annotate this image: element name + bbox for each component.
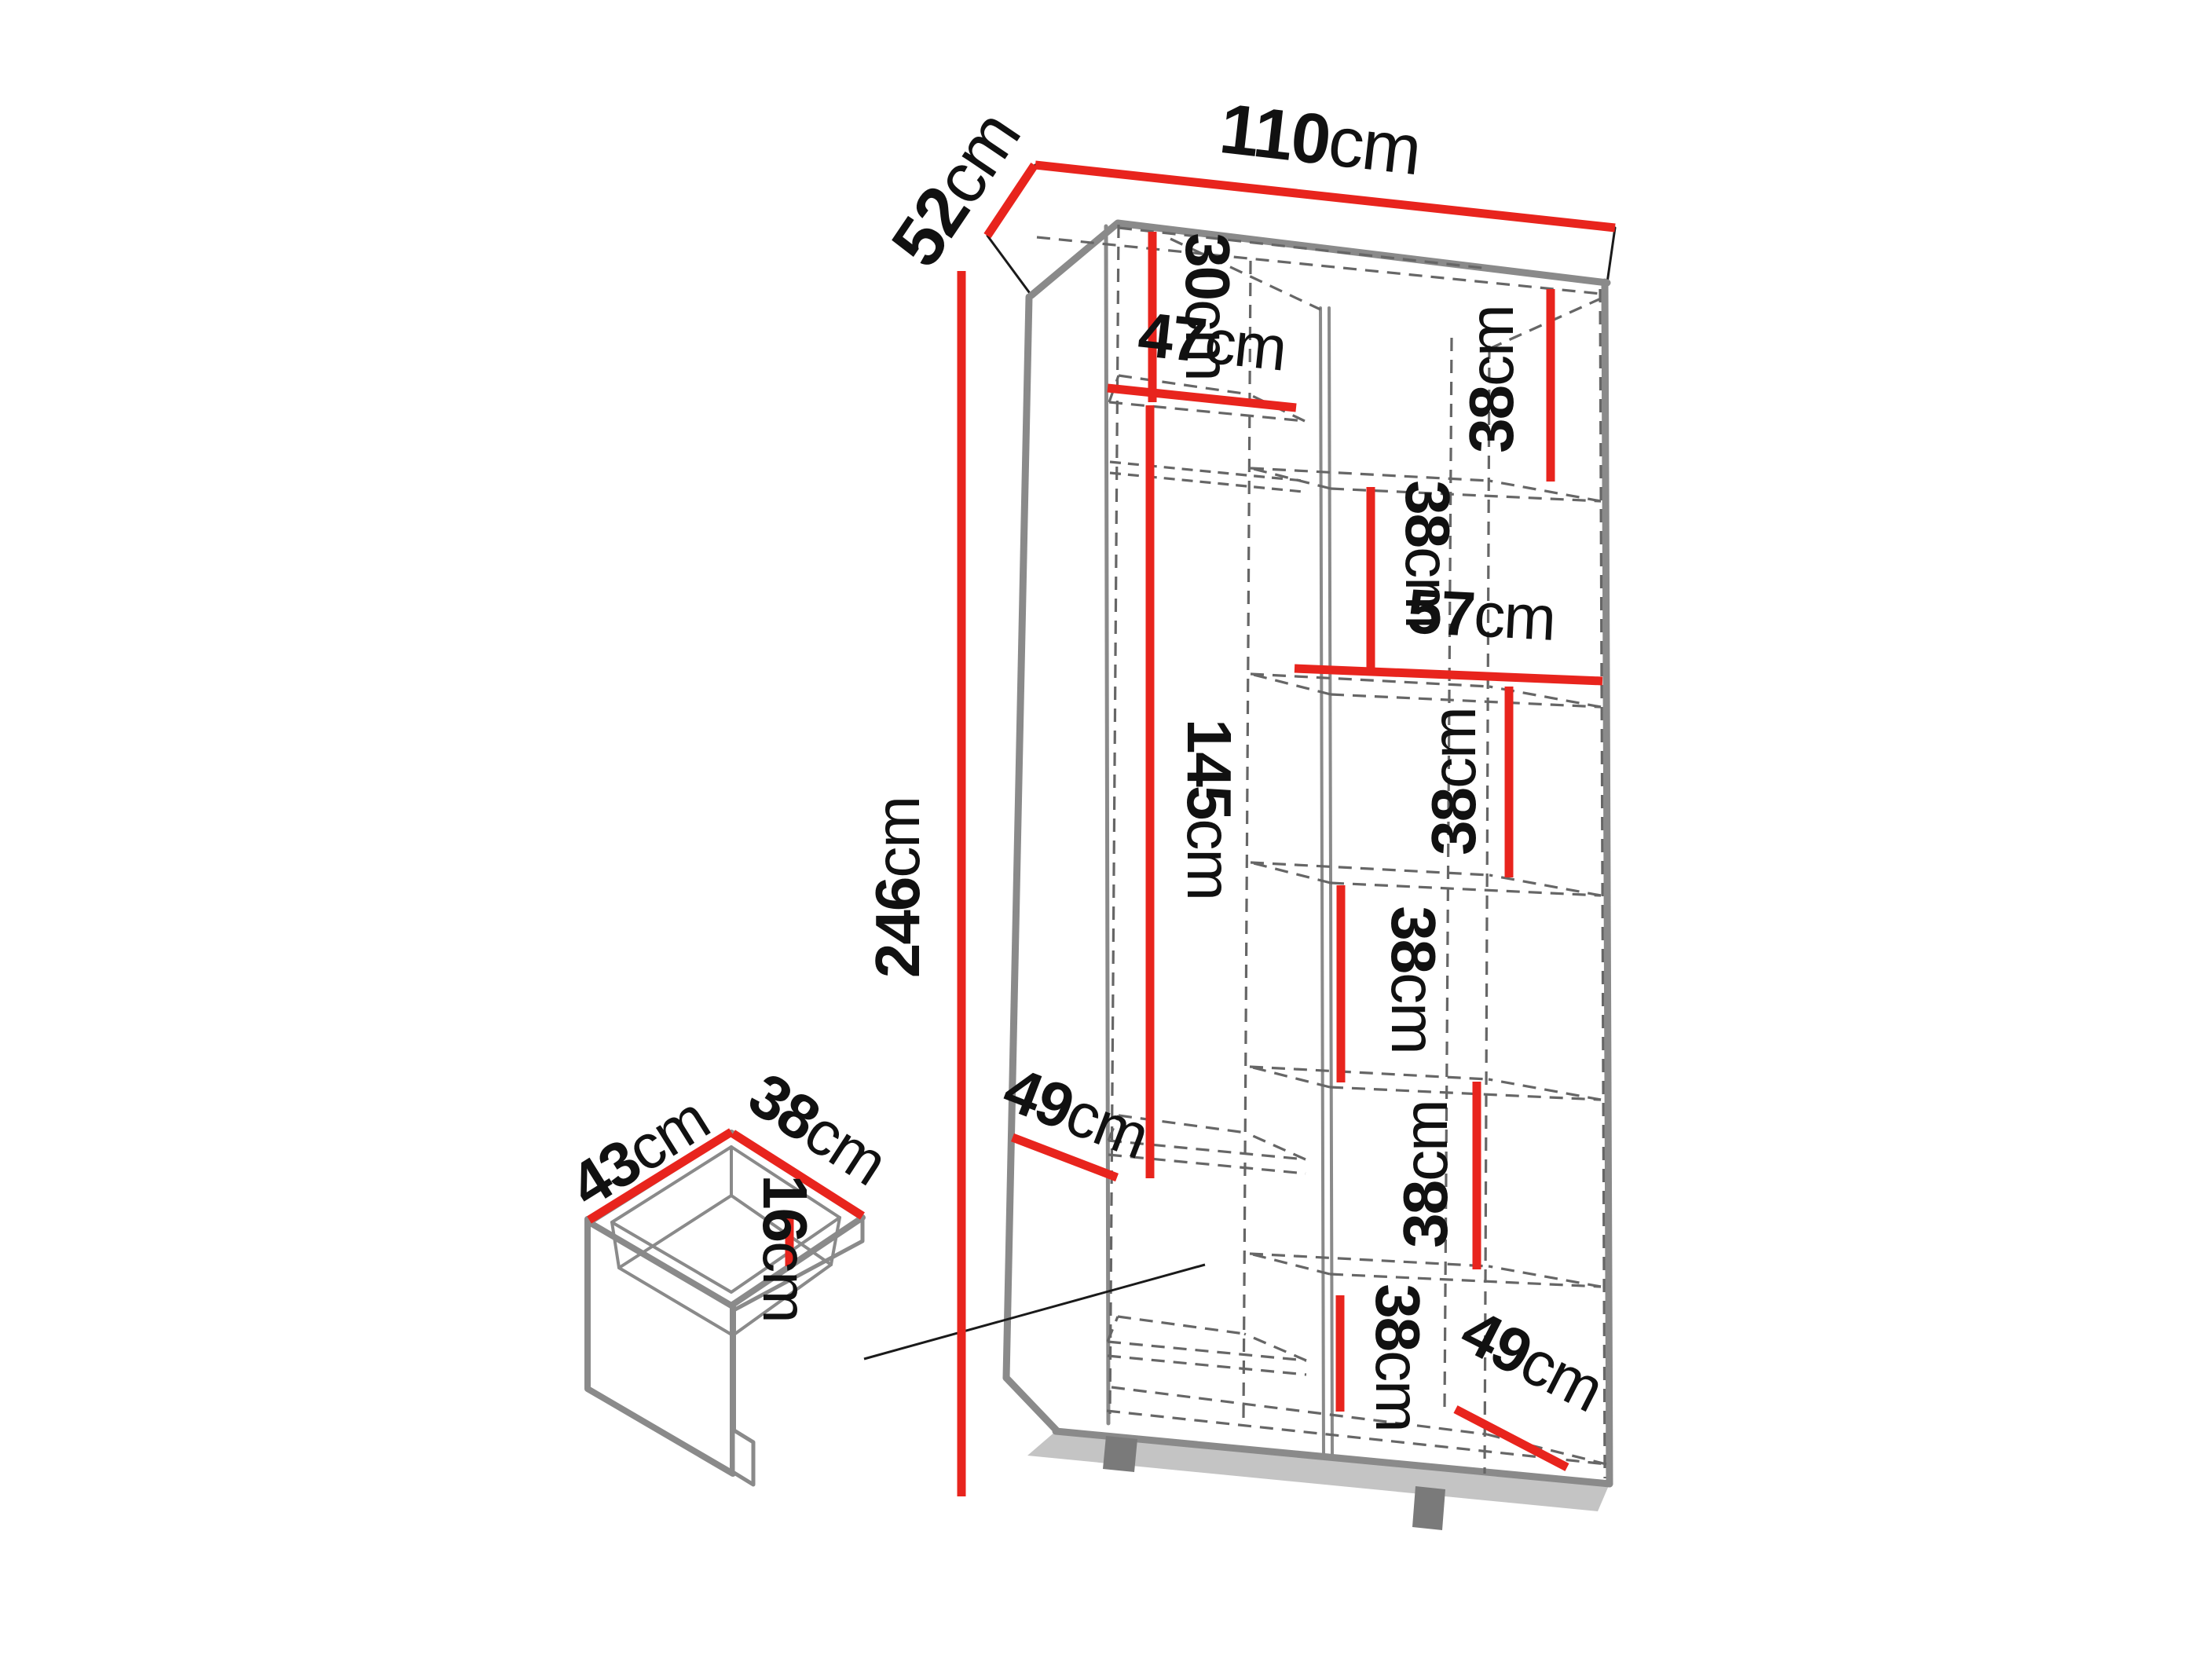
left-foot bbox=[1103, 1436, 1137, 1472]
dim-label-shelf38f: 38cm bbox=[1363, 1284, 1433, 1431]
diagram-stage: 52cm 110cm 246cm 30cm 47cm 145cm 49cm 38… bbox=[0, 0, 2212, 1659]
dim-label-shelf38e: 38cm bbox=[1390, 1101, 1460, 1248]
right-outer-edge bbox=[1605, 282, 1610, 1484]
dim-label-shelf38a: 38cm bbox=[1456, 306, 1526, 453]
dim-label-shelf38d: 38cm bbox=[1379, 906, 1448, 1053]
dim-label-right57: 57cm bbox=[1405, 576, 1556, 654]
dim-label-height246: 246cm bbox=[862, 797, 932, 978]
dim-label-drawer16: 16cm bbox=[750, 1174, 820, 1322]
wardrobe-dimension-diagram: 52cm 110cm 246cm 30cm 47cm 145cm 49cm 38… bbox=[0, 0, 2212, 1659]
dim-label-shelf38c: 38cm bbox=[1419, 708, 1489, 855]
right-foot bbox=[1412, 1486, 1445, 1530]
dim-label-hang145: 145cm bbox=[1174, 719, 1244, 899]
left-inner-edge bbox=[1106, 226, 1108, 1423]
